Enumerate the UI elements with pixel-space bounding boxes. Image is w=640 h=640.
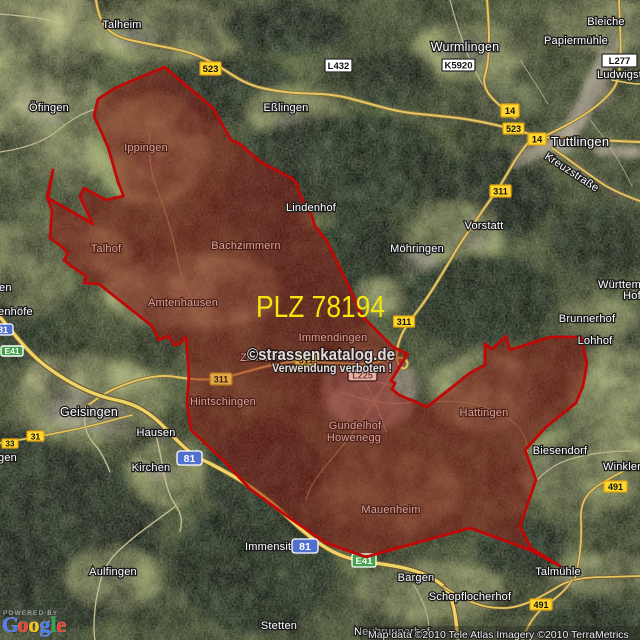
svg-text:Immendingen: Immendingen [299,332,368,344]
svg-text:Winklerhof: Winklerhof [603,461,640,473]
svg-text:Hattingen: Hattingen [460,407,509,419]
svg-text:81: 81 [184,453,196,465]
svg-text:Mauenheim: Mauenheim [361,504,420,516]
svg-text:Stetten: Stetten [261,620,297,632]
svg-text:491: 491 [533,600,548,610]
svg-text:Howenegg: Howenegg [327,432,381,444]
svg-text:Biesendorf: Biesendorf [533,445,588,457]
svg-text:Schopflocherhof: Schopflocherhof [429,591,512,603]
svg-text:Hintschingen: Hintschingen [190,396,256,408]
svg-text:Kirchen: Kirchen [132,462,171,474]
svg-text:enhöfe: enhöfe [0,306,33,318]
svg-text:Bachzimmern: Bachzimmern [211,240,280,252]
svg-text:Öfingen: Öfingen [29,102,69,114]
svg-text:e: e [57,612,67,637]
svg-text:33: 33 [6,440,15,449]
svg-text:Immensitz: Immensitz [245,541,297,553]
svg-text:Map data ©2010 Tele Atlas Ima: Map data ©2010 Tele Atlas Imagery ©2010 … [368,629,629,640]
svg-text:Talhof: Talhof [91,243,122,255]
svg-text:Hausen: Hausen [136,427,175,439]
svg-text:PLZ 78194: PLZ 78194 [256,289,385,324]
svg-text:Lindenhof: Lindenhof [286,202,337,214]
svg-text:Wurmlingen: Wurmlingen [431,40,499,54]
svg-text:81: 81 [299,541,311,553]
svg-text:311: 311 [397,317,412,327]
svg-text:Brunnerhof: Brunnerhof [559,313,616,325]
svg-text:gen: gen [0,452,17,464]
svg-text:E41: E41 [4,346,19,356]
svg-text:Lohhof: Lohhof [578,335,614,347]
svg-text:Geisingen: Geisingen [60,405,118,419]
svg-text:K5920: K5920 [445,61,473,72]
svg-text:523: 523 [506,124,521,134]
svg-text:Gundelhof: Gundelhof [329,420,382,432]
svg-text:491: 491 [608,482,623,492]
svg-text:Ippingen: Ippingen [124,142,168,154]
svg-text:523: 523 [203,64,219,75]
svg-text:311: 311 [214,375,229,385]
svg-text:©strassenkatalog.de: ©strassenkatalog.de [247,346,395,364]
svg-text:81: 81 [0,325,8,335]
svg-text:Talheim: Talheim [102,19,141,31]
svg-text:14: 14 [532,135,543,146]
svg-text:Tuttlingen: Tuttlingen [551,134,610,149]
svg-text:o: o [18,612,29,637]
svg-text:Bargen: Bargen [398,572,435,584]
svg-text:Bleiche: Bleiche [587,16,624,28]
svg-text:o: o [29,612,40,637]
svg-text:Möhringen: Möhringen [390,243,444,255]
svg-text:g: g [40,612,51,637]
svg-text:Eßlingen: Eßlingen [263,102,308,114]
svg-text:Vorstatt: Vorstatt [465,220,504,232]
svg-text:L277: L277 [609,56,631,67]
svg-text:311: 311 [493,187,508,197]
svg-text:Verwendung verboten !: Verwendung verboten ! [272,363,392,375]
svg-text:L432: L432 [328,61,350,72]
svg-text:31: 31 [31,432,41,442]
svg-text:Aulfingen: Aulfingen [89,566,137,578]
svg-text:Ludwigstal: Ludwigstal [597,69,640,81]
svg-text:Hof: Hof [623,290,640,302]
svg-text:en: en [0,282,12,294]
svg-text:Papiermühle: Papiermühle [544,35,608,47]
svg-text:Talmühle: Talmühle [535,566,581,578]
svg-text:Amtenhausen: Amtenhausen [148,297,218,309]
svg-text:14: 14 [505,106,516,117]
